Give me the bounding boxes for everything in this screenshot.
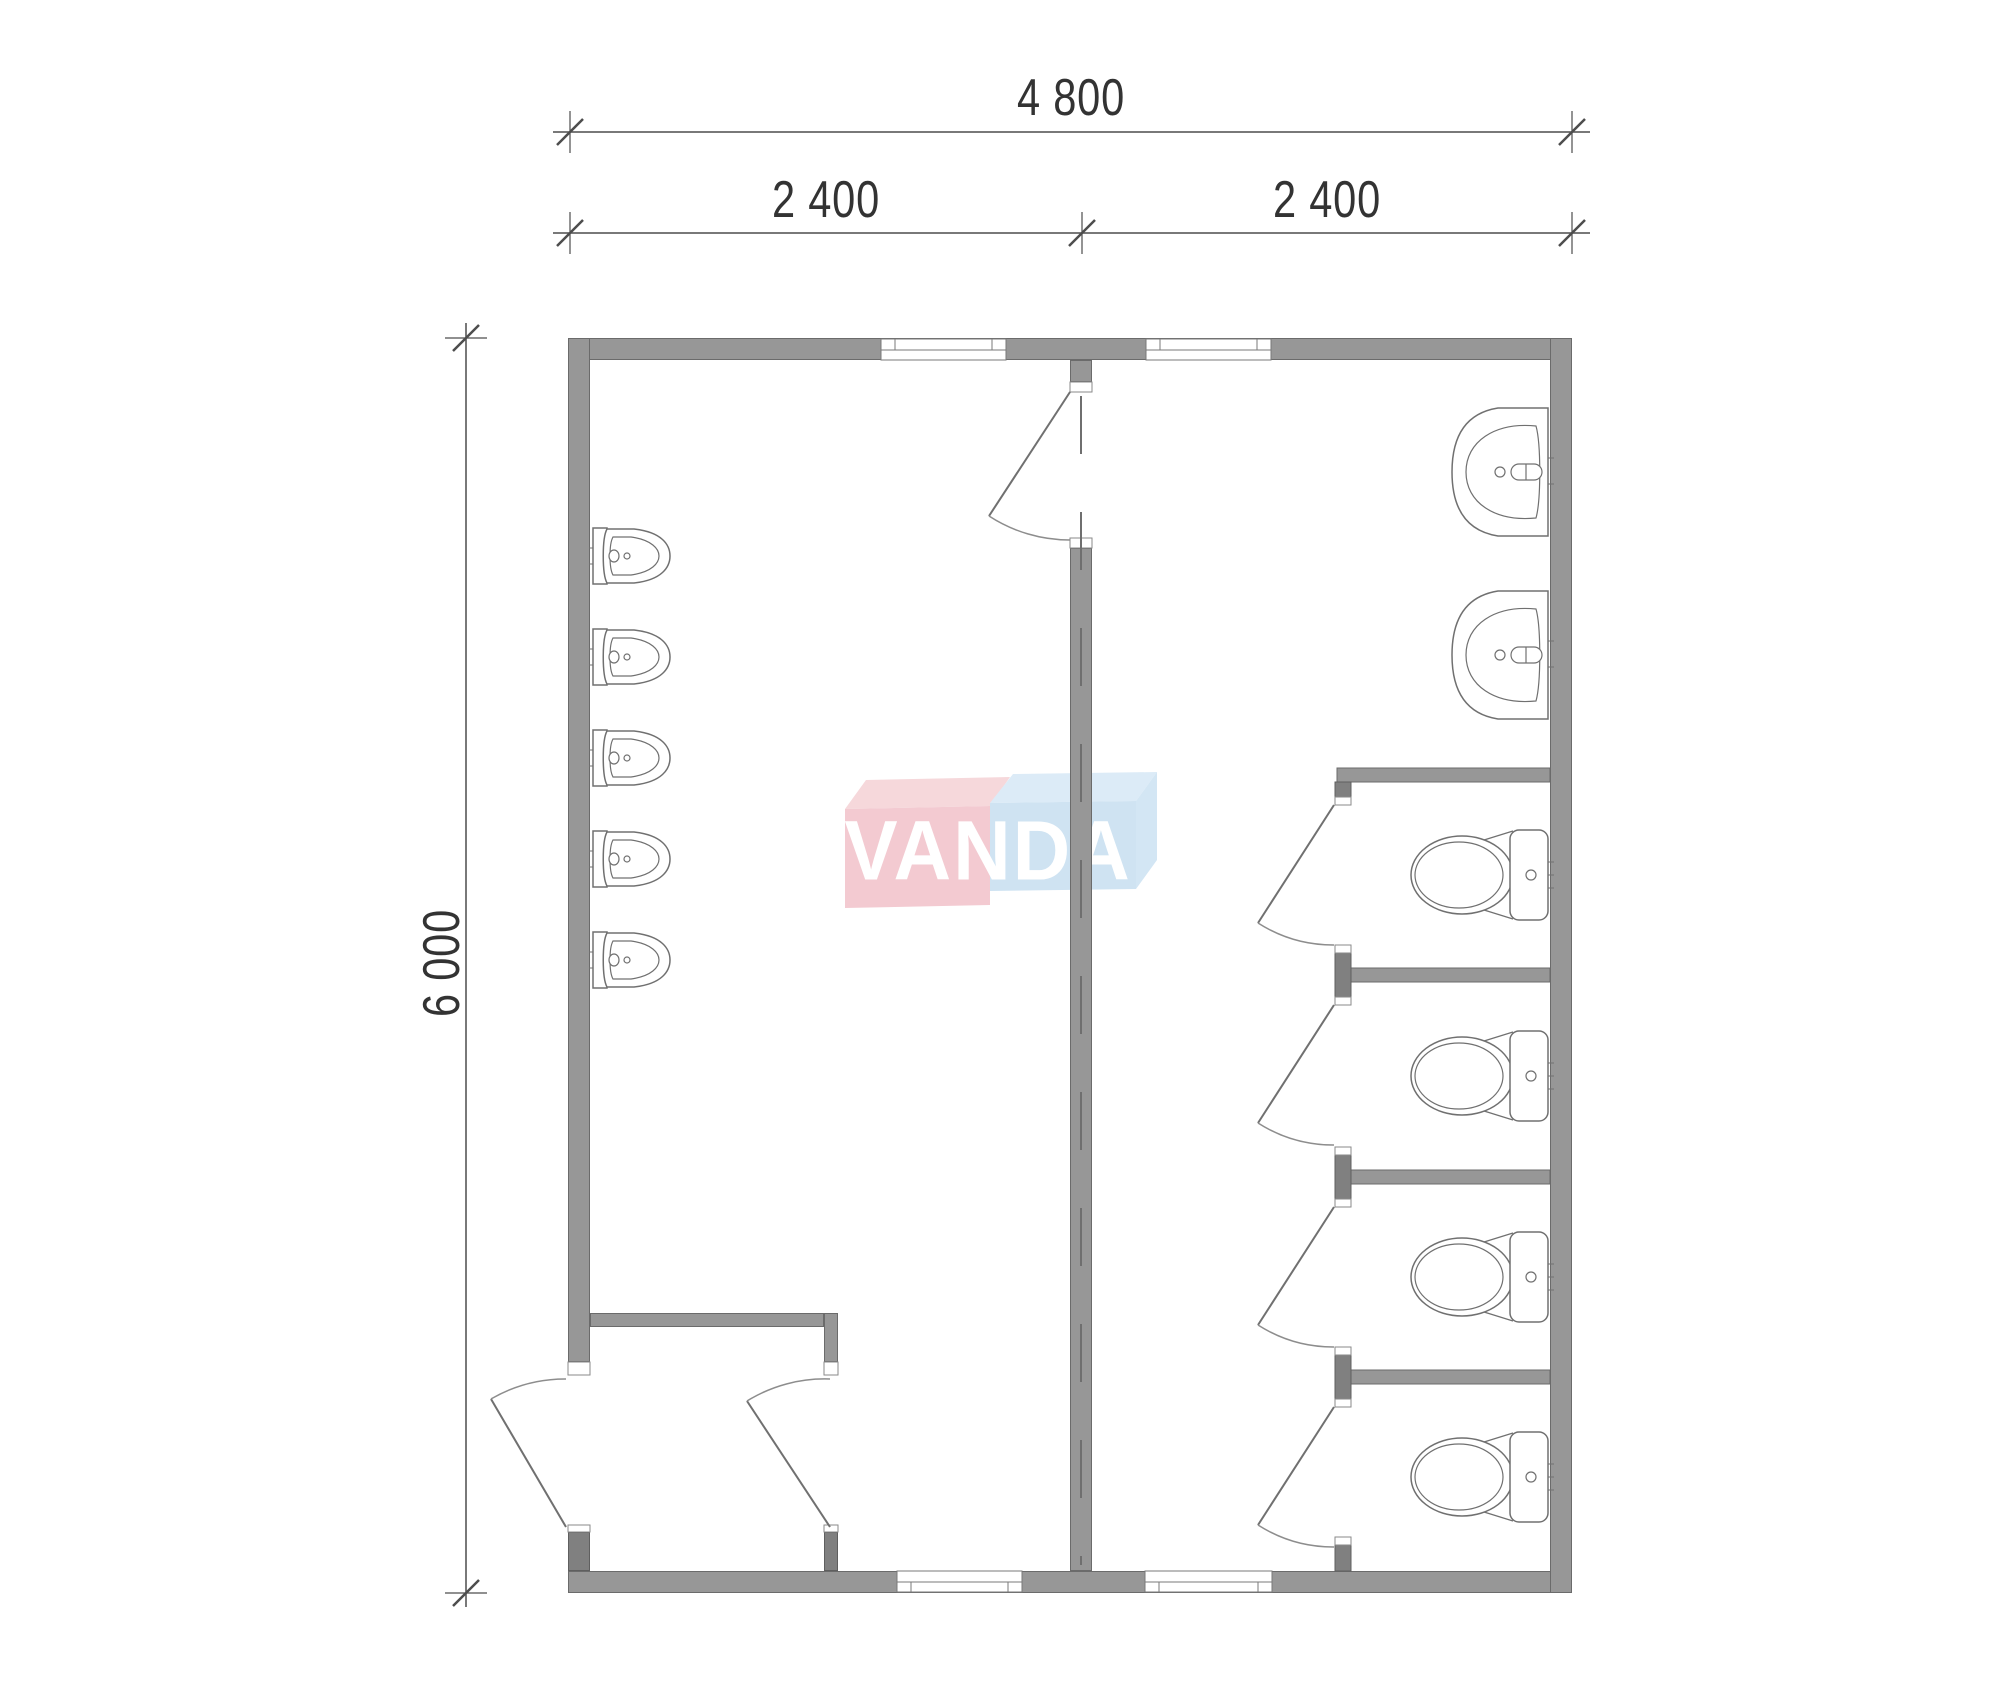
- stall-partition: [1335, 1147, 1550, 1207]
- door-swing-arc: [1258, 1525, 1334, 1547]
- stall-door-post: [1335, 782, 1351, 797]
- stall-door-jamb: [1335, 1399, 1351, 1407]
- sink: [1452, 591, 1554, 719]
- door-leaf: [1258, 805, 1334, 923]
- toilet: [1411, 1031, 1554, 1121]
- door-swing-arc: [1258, 923, 1334, 945]
- window: [881, 339, 1006, 360]
- sink: [1452, 408, 1554, 536]
- stall-door-post: [1335, 1155, 1351, 1199]
- door-swing-arc: [747, 1379, 830, 1401]
- stall-door-post: [1335, 1545, 1351, 1571]
- door-leaf: [1258, 1207, 1334, 1325]
- stall-door-post: [1335, 1355, 1351, 1399]
- window: [897, 1571, 1022, 1592]
- window: [1145, 1571, 1272, 1592]
- door-leaf: [747, 1401, 830, 1527]
- door-leaf: [491, 1399, 566, 1527]
- vestibule-door: [747, 1379, 830, 1527]
- door-swing-arc: [1258, 1123, 1334, 1145]
- stall-door-post: [1335, 953, 1351, 997]
- door-leaf: [1258, 1005, 1334, 1123]
- door-swing-arc: [1258, 1325, 1334, 1347]
- toilet: [1411, 1232, 1554, 1322]
- stall-door-2: [1258, 1005, 1334, 1145]
- stall-door-jamb: [1335, 1537, 1351, 1545]
- urinal: [589, 528, 670, 584]
- stall-door-jamb: [1335, 997, 1351, 1005]
- stall-partition: [1335, 768, 1550, 805]
- door-swing-arc: [989, 516, 1070, 540]
- dimension-line-top-halves: [553, 212, 1590, 254]
- floor-plan-canvas: VANDA: [0, 0, 2000, 1684]
- door-leaf: [989, 392, 1070, 516]
- plan-linework: [0, 0, 2000, 1684]
- urinal: [589, 629, 670, 685]
- dim-label-left-height: 6 000: [412, 909, 472, 1017]
- stall-door-1: [1258, 805, 1334, 945]
- dim-label-top-right: 2 400: [1273, 170, 1381, 230]
- window: [1146, 339, 1271, 360]
- door-leaf: [1258, 1407, 1334, 1525]
- urinal: [589, 932, 670, 988]
- stall-partition: [1335, 1347, 1550, 1407]
- urinal: [589, 831, 670, 887]
- dim-label-top-left: 2 400: [772, 170, 880, 230]
- stall-door-jamb: [1335, 945, 1351, 953]
- door-swing-arc: [491, 1379, 566, 1399]
- stall-partition: [1335, 945, 1550, 1005]
- stall-door-3: [1258, 1207, 1334, 1347]
- stall-door-jamb: [1335, 1147, 1351, 1155]
- toilet: [1411, 830, 1554, 920]
- entrance-door: [491, 1379, 566, 1527]
- stall-door-jamb: [1335, 797, 1351, 805]
- dim-label-top-total: 4 800: [1017, 68, 1125, 128]
- stall-door-4: [1258, 1407, 1334, 1547]
- main-room-door: [989, 392, 1070, 540]
- stall-door-jamb: [1335, 1347, 1351, 1355]
- urinal: [589, 730, 670, 786]
- stall-door-jamb: [1335, 1199, 1351, 1207]
- toilet: [1411, 1432, 1554, 1522]
